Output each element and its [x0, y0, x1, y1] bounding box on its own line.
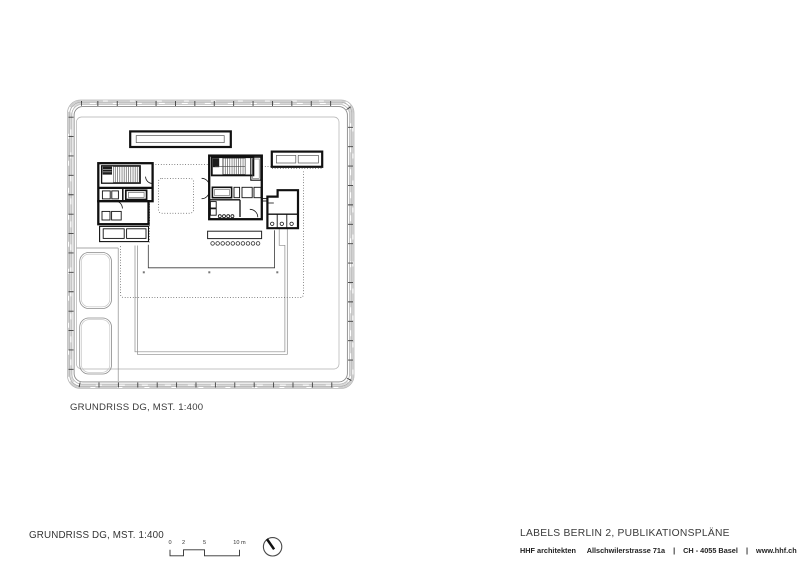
scale-tick-label-5: 5: [203, 540, 206, 546]
planter-dots: [211, 242, 260, 246]
terrace-outer-edge: [137, 228, 287, 354]
roof-bar-top: [130, 131, 231, 147]
publication-plan-sheet: { "plan": { "caption": "GRUNDRISS DG, MS…: [0, 0, 800, 567]
firm-info-line: HHF architekten Allschwilerstrasse 71a |…: [520, 546, 797, 555]
skylights: [80, 253, 112, 375]
scale-tick-label-0: 0: [168, 540, 171, 546]
footer-drawing-title: GRUNDRISS DG, MST. 1:400: [29, 530, 164, 541]
scale-bar: [170, 550, 240, 556]
terrace-inner-edge: [135, 228, 285, 351]
scale-tick-label-10m: 10 m: [233, 540, 245, 546]
scale-tick-label-2: 2: [182, 540, 185, 546]
plaza-bench-row: [208, 231, 262, 245]
firm-name: HHF architekten: [520, 546, 576, 555]
firm-city: CH - 4055 Basel: [683, 546, 738, 555]
floor-plan-drawing: [0, 0, 800, 567]
unit-middle: [202, 156, 268, 220]
roof-bar-top-right: [272, 152, 322, 167]
elevator-core: [267, 190, 298, 228]
north-arrow-icon: [263, 538, 281, 556]
upper-platform-edge: [143, 230, 278, 273]
roof-terrace-lines: [77, 228, 288, 381]
dashed-skylight-outline: [158, 178, 193, 213]
project-title: LABELS BERLIN 2, PUBLIKATIONSPLÄNE: [520, 528, 730, 539]
separator: |: [673, 546, 675, 555]
plan-caption: GRUNDRISS DG, MST. 1:400: [70, 402, 203, 413]
firm-website-link[interactable]: www.hhf.ch: [756, 546, 797, 555]
separator: |: [746, 546, 748, 555]
firm-address: Allschwilerstrasse 71a: [587, 546, 665, 555]
unit-left: [98, 163, 152, 241]
